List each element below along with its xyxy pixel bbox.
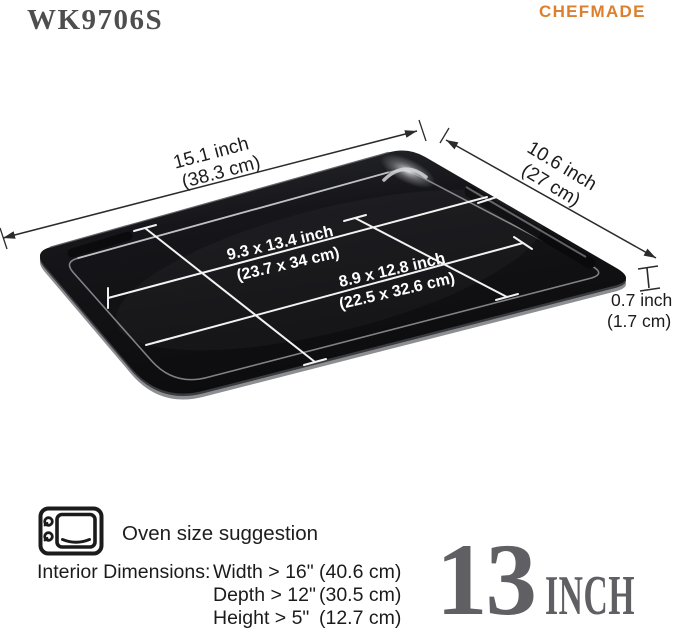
spacer bbox=[37, 584, 213, 607]
size-badge-number: 13 bbox=[436, 538, 535, 622]
interior-dimensions-table: Interior Dimensions: Width > 16" (40.6 c… bbox=[37, 561, 401, 631]
tray-dimension-diagram: 9.3 x 13.4 inch (23.7 x 34 cm) 8.9 x 12.… bbox=[0, 100, 679, 445]
product-model-label: WK9706S bbox=[27, 4, 163, 37]
oven-size-suggestion-title: Oven size suggestion bbox=[122, 522, 318, 546]
size-badge: 13 INCH bbox=[436, 538, 679, 622]
interior-dim-width-cm: (40.6 cm) bbox=[319, 561, 401, 584]
interior-dim-height-cm: (12.7 cm) bbox=[319, 607, 401, 630]
interior-dim-depth-cm: (30.5 cm) bbox=[319, 584, 401, 607]
size-badge-unit: INCH bbox=[545, 574, 635, 619]
spacer bbox=[37, 607, 213, 630]
brand-logo: CHEFMADE bbox=[539, 2, 646, 22]
interior-dim-depth: Depth > 12" bbox=[213, 584, 319, 607]
interior-dim-height: Height > 5" bbox=[213, 607, 319, 630]
height-dimension-label: 0.7 inch bbox=[611, 290, 672, 310]
product-dimension-page: { "header": { "model": "WK9706S", "brand… bbox=[0, 0, 679, 630]
height-dimension-label-cm: (1.7 cm) bbox=[607, 311, 671, 331]
oven-icon bbox=[38, 506, 104, 556]
interior-dimensions-prefix: Interior Dimensions: bbox=[37, 561, 213, 584]
interior-dim-width: Width > 16" bbox=[213, 561, 319, 584]
